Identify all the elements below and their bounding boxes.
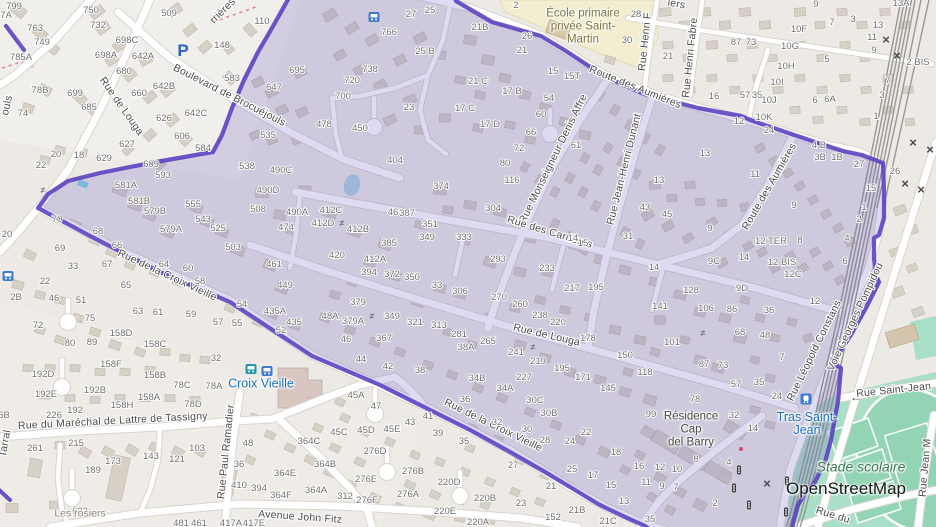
house-number: 261 [27,443,43,454]
house-number: 41 [423,411,434,422]
house-number: 349 [384,311,400,322]
house-number: 538 [239,161,255,172]
map-viewport[interactable]: Boulevard de BrocuéjoulsRue de Lougarriè… [0,0,936,527]
house-number: 276A [397,489,420,500]
house-number: 46 [49,293,60,304]
house-number: 51 [76,295,87,306]
house-number: 38 [415,365,426,376]
house-number: 47 [371,401,382,412]
building [815,21,826,29]
house-number: 67 [102,259,113,270]
house-number: 36 [460,394,471,405]
house-number: 738 [362,64,378,75]
house-number: 21B [569,505,586,516]
house-number: 412D [312,218,335,229]
house-number: 20 [2,229,13,240]
house-number: 435A [264,306,287,317]
house-number: 238 [532,310,548,321]
traffic-signal-icon [737,466,741,475]
house-number: 412A [364,254,387,265]
house-number: 461 [191,518,207,527]
osm-attribution-link[interactable]: OpenStreetMap [786,479,906,499]
house-number: 30B [541,408,558,419]
house-number: 27 [854,159,865,170]
house-number: 9 [791,200,796,211]
house-number: 27 [406,9,417,20]
house-number: 647 [266,82,282,93]
house-number: 763 [27,23,43,34]
house-number: 10K [756,112,774,123]
house-number: 12 TER [755,236,787,247]
house-number: 24 [764,125,775,136]
house-number: 46 [341,334,352,345]
house-number: 21B [472,22,489,33]
building [165,395,175,402]
traffic-signal-icon [747,501,751,510]
building [903,86,914,94]
house-number: 158F [100,359,122,370]
house-number: 6B [0,410,10,421]
house-number: 1 [873,111,878,122]
house-number: 9 [707,223,712,234]
building [759,21,771,30]
bus-stop-teal-icon [246,364,257,374]
house-number: 158D [110,328,133,339]
cul-de-sac [64,490,81,507]
house-number: 276F [356,495,378,506]
house-number: 28 [540,435,551,446]
house-number: 18 [74,150,85,161]
house-number: 173 [105,456,121,467]
house-number: 350 [404,272,420,283]
house-number: 66 [112,240,123,251]
house-number: 10J [761,95,777,106]
poi-dot [739,447,743,451]
house-number: 116 [504,175,519,186]
building [840,41,851,49]
house-number: 217 [564,283,580,294]
house-number: 581A [115,180,138,191]
map-canvas: Boulevard de BrocuéjoulsRue de Lougarriè… [0,0,936,527]
house-number: 7 [885,75,890,86]
gate-icon: ≠ [41,185,46,195]
house-number: 490A [286,207,309,218]
house-number: 70 [52,214,63,225]
house-number: 78 [690,394,701,405]
building [730,86,741,94]
house-number: 17 D [480,119,500,130]
house-number: 11 [750,169,760,180]
house-number: 1 [861,202,866,213]
house-number: 158C [144,339,167,350]
house-number: 508 [250,204,266,215]
house-number: 73 [718,360,729,371]
house-number: 3 [850,14,855,25]
house-number: 404 [387,155,403,166]
building [90,397,100,404]
house-number: 593 [155,170,171,181]
building [794,8,806,17]
gate-icon: ≠ [340,218,345,228]
house-number: 9 [813,0,818,10]
house-number: 233 [539,263,555,274]
house-number: 27 [508,460,519,471]
house-number: 2 [712,498,717,509]
house-number: 195 [554,363,570,374]
house-number: 15 [578,238,589,249]
house-number: 321 [407,317,423,328]
house-number: 106 [698,303,714,314]
building [857,21,868,29]
house-number: 44 [356,354,367,365]
one-way-arrow-icon: ← [850,390,862,404]
house-number: 13 [654,175,665,186]
house-number: 478 [316,119,332,130]
house-number: 32 [729,410,740,421]
house-number: 24 [565,436,576,447]
house-number: 461 [266,259,282,270]
house-number: 785A [10,52,33,63]
house-number: 43 [405,417,416,428]
house-number: 78D [184,399,202,410]
house-number: 12 [734,116,745,127]
house-number: 11 [867,32,877,43]
house-number: 10 [672,464,683,475]
house-number: 8 [797,235,802,246]
house-number: 34B [469,373,486,384]
house-number: 509 [161,8,177,19]
house-number: 45D [357,425,375,436]
house-number: 13 [700,148,711,159]
house-number: 143 [143,451,159,462]
house-number: 11 [641,477,651,488]
house-number: 57 [740,90,751,101]
house-number: 45E [384,424,401,435]
house-number: 7 [829,17,834,28]
house-number: 80 [500,158,511,169]
house-number: 642A [132,51,155,62]
traffic-signal-icon [784,508,788,517]
house-number: 680 [116,66,132,77]
level-crossing-icon: × [901,176,909,191]
house-number: 17 B [502,86,522,97]
house-number: 54 [237,299,248,310]
house-number: 10I [770,77,783,88]
house-number: 22 [36,160,47,171]
house-number: 178 [580,333,596,344]
house-number: 412C [320,205,343,216]
house-number: 55 [232,318,243,329]
house-number: 270 [491,292,507,303]
house-number: 35 [459,436,470,447]
house-number: 21 C [468,76,488,87]
house-number: 12 [655,462,666,473]
house-number: 583 [224,73,240,84]
house-number: 75 [85,313,96,324]
house-number: 14 [748,423,759,434]
house-number: 2 [856,214,861,225]
house-number: 60 [183,263,194,274]
house-number: 80 [65,338,76,349]
house-number: 276D [364,446,387,457]
house-number: 9C [708,256,720,267]
building [880,8,891,16]
house-number: 4 [726,457,731,468]
house-number: 32 [492,417,503,428]
house-number: 58 [195,276,206,287]
house-number: 490D [257,185,280,196]
house-number: 57 [213,317,224,328]
house-number: 48 [760,330,771,341]
house-number: 749 [34,37,50,48]
house-number: 14 [739,252,750,263]
house-number: 46 [388,207,399,218]
house-number: 306 [452,286,468,297]
house-number: 78C [173,380,191,391]
house-number: 35 [754,377,765,388]
house-number: 192 [67,405,83,416]
house-number: 9 [659,481,664,492]
house-number: 34A [497,383,515,394]
house-number: 374 [433,181,449,192]
house-number: 7 [779,352,784,363]
house-number: 26 [522,31,533,42]
house-number: 25 B [415,46,435,57]
house-number: 525 [210,223,226,234]
house-number: 629 [96,153,112,164]
house-number: 152 [545,512,561,523]
house-number: 265 [480,336,496,347]
house-number: 21 [546,481,557,492]
house-number: 99 [646,409,657,420]
house-number: 36 [234,459,245,470]
building [663,41,674,49]
house-number: 410 [231,480,247,491]
house-number: 57 [731,379,742,390]
house-number: 241 [508,347,524,358]
traffic-signal-icon [732,484,736,493]
house-number: 30 [522,424,533,435]
house-number: 579B [144,206,166,217]
house-number: 417E [243,518,265,527]
house-number: 304 [485,203,501,214]
house-number: 8 [693,454,698,465]
house-number: 66 [526,127,537,138]
house-number: 313 [431,320,447,331]
house-number: 12 [810,296,821,307]
house-number: 48 [243,438,254,449]
level-crossing-icon: × [763,476,771,491]
house-number: 69 [55,243,66,254]
house-number: 6 [842,256,847,267]
building [719,21,731,30]
house-number: 220A [467,517,490,527]
house-number: 642B [153,81,175,92]
house-number: 333 [456,232,472,243]
house-number: 10G [781,41,799,52]
building [739,8,751,17]
house-number: 68 [735,327,746,338]
house-number: 158H [111,400,134,411]
house-number: 20 [51,149,62,160]
house-number: 52 [276,325,287,336]
level-crossing-icon: × [882,32,890,47]
house-number: 30 [622,35,633,46]
house-number: 68 [93,226,104,237]
house-number: 33 [432,280,443,291]
building [837,8,848,16]
house-number: 87 [731,37,742,48]
house-number: 7 [673,482,678,493]
house-number: 364C [298,436,321,447]
house-number: 4 [844,233,849,244]
house-number: 627 [119,139,135,150]
house-number: 158A [138,392,161,403]
house-number: 474 [278,222,294,233]
house-number: 158B [144,370,166,381]
house-number: 10F [791,24,808,35]
house-number: 25 [567,464,578,475]
house-number: 26 [890,166,901,177]
cul-de-sac [379,464,396,481]
house-number: 61 [571,140,582,151]
house-number: 642C [185,108,208,119]
house-number: 660 [131,88,147,99]
house-number: 732 [90,20,106,31]
house-number: 63 [133,306,144,317]
house-number: 351 [422,219,438,230]
house-number: 14 [649,262,660,273]
house-number: 21 [663,51,674,62]
house-number: 17 C [455,103,475,114]
house-number: 17 [588,470,599,481]
level-crossing-icon: × [917,182,925,197]
house-number: 60 [536,109,547,120]
house-number: 227 [516,372,532,383]
house-number: 121 [169,454,185,465]
house-number: 43 [640,202,651,213]
house-number: 78A [206,381,224,392]
building [65,395,75,402]
house-number: 220B [474,493,496,504]
building [200,356,211,364]
house-number: 148 [214,40,230,51]
house-number: 48A [322,311,340,322]
house-number: 2 [513,0,518,11]
house-number: 22 [40,276,51,287]
house-number: 15 [606,480,617,491]
building [663,74,674,82]
gate-icon: ≠ [701,328,706,338]
house-number: 579A [160,224,183,235]
building [813,116,824,124]
house-number: 349 [419,232,435,243]
house-number: 33 [68,261,79,272]
house-number: 503 [225,242,241,253]
house-number: 59 [186,309,197,320]
house-number: 16 [709,91,720,102]
house-number: 695 [289,65,305,76]
house-number: 276B [402,466,424,477]
house-number: 685 [81,102,97,113]
house-number: 394 [251,483,267,494]
house-number: 435 [286,317,302,328]
house-number: 192E [35,389,57,400]
house-number: 4 B [812,140,826,151]
house-number: 609 [143,159,159,170]
house-number: 394 [361,267,377,278]
house-number: 31 [623,231,634,242]
gate-icon: ≠ [531,342,536,352]
building [861,86,872,94]
house-number: 145 [600,383,616,394]
house-number: 54 [544,93,555,104]
house-number: 367 [376,333,392,344]
house-number: 18 [611,447,622,458]
house-number: 379 [350,297,366,308]
house-number: 481 [173,518,189,527]
house-number: 766 [381,27,397,38]
house-number: 12C [784,269,802,280]
cul-de-sac [452,488,469,505]
gate-icon: ≠ [370,311,375,321]
house-number: 226 [46,410,62,421]
house-number: 72 [514,143,525,154]
house-number: 74 [18,108,29,119]
house-number: 32 [211,353,222,364]
house-number: 490C [270,165,293,176]
house-number: 171 [575,372,591,383]
house-number: 128 [683,285,699,296]
house-number: 118 [637,367,652,378]
house-number: 3 [879,90,884,101]
house-number: 23 [404,102,415,113]
house-number: 220 [550,317,566,328]
house-number: 36 [764,305,775,316]
house-number: 78B [32,85,49,96]
building [180,354,191,362]
house-number: 750 [83,5,99,16]
cul-de-sac [60,314,77,331]
rail-station-icon [801,394,812,405]
house-number: 364E [274,468,296,479]
house-number: 30C [526,395,544,406]
house-number: 45C [330,427,348,438]
house-number: 449 [277,280,293,291]
house-number: 39 [433,428,444,439]
house-number: 7A [0,10,12,21]
level-crossing-icon: × [893,48,901,63]
building [900,21,911,29]
bus-stop-icon [3,271,14,281]
house-number: 192D [32,369,55,380]
house-number: 10H [777,61,795,72]
house-number: 21 [517,45,528,56]
building [707,74,718,82]
house-number: 387 [399,208,415,219]
house-number: 73 [746,37,757,48]
house-number: 626 [156,113,172,124]
bus-stop-icon [262,366,273,376]
house-number: 24 [772,391,783,402]
house-number: 417A [220,518,243,527]
house-number: 42 [383,361,394,372]
house-number: 450 [352,123,368,134]
house-number: 72 [33,320,44,331]
house-number: 45A [348,390,366,401]
building [790,106,801,114]
house-number: 15T [564,71,581,82]
